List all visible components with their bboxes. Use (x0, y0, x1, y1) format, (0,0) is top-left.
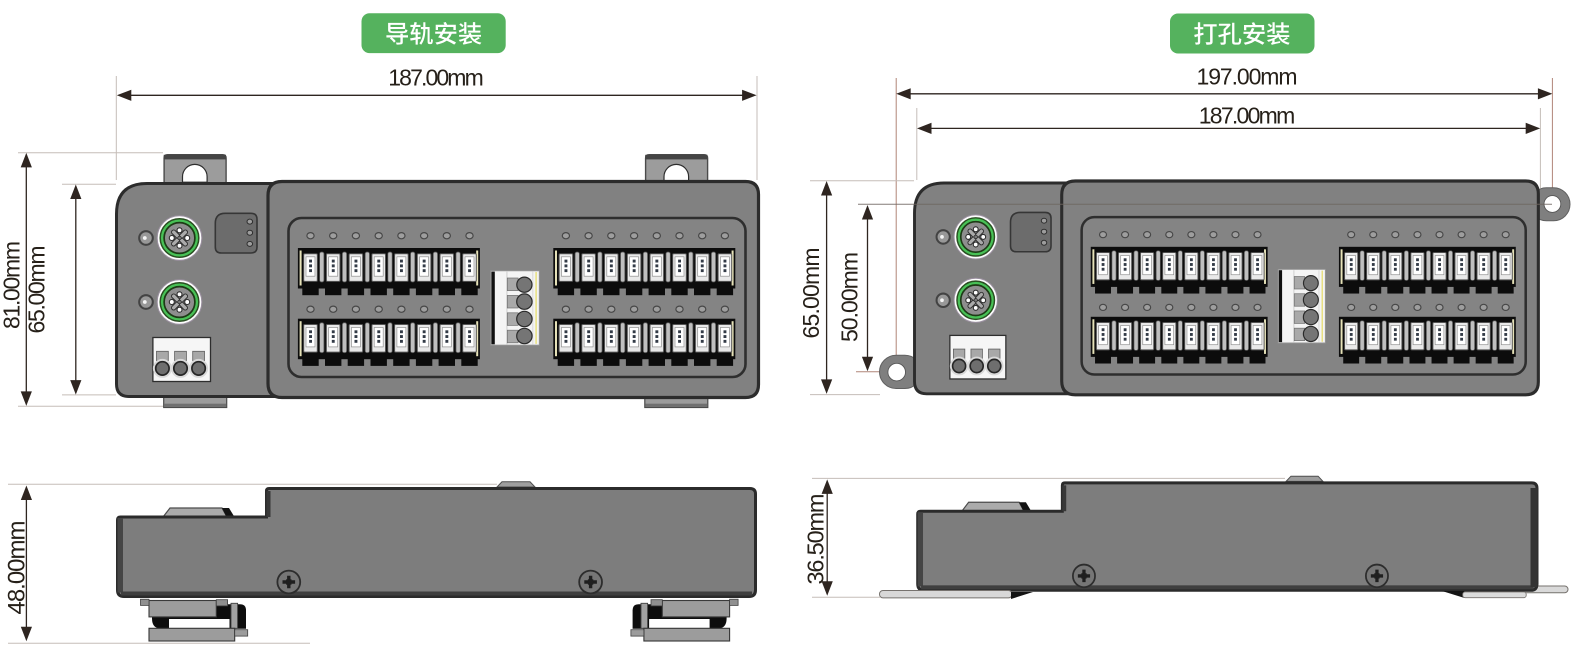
svg-text:187.00mm: 187.00mm (388, 65, 484, 91)
svg-text:187.00mm: 187.00mm (1199, 103, 1296, 129)
svg-text:197.00mm: 197.00mm (1197, 64, 1298, 90)
svg-text:50.00mm: 50.00mm (837, 252, 863, 342)
svg-text:81.00mm: 81.00mm (0, 241, 25, 329)
svg-text:36.50mm: 36.50mm (803, 494, 829, 585)
svg-text:65.00mm: 65.00mm (798, 248, 824, 339)
svg-text:65.00mm: 65.00mm (24, 246, 50, 334)
